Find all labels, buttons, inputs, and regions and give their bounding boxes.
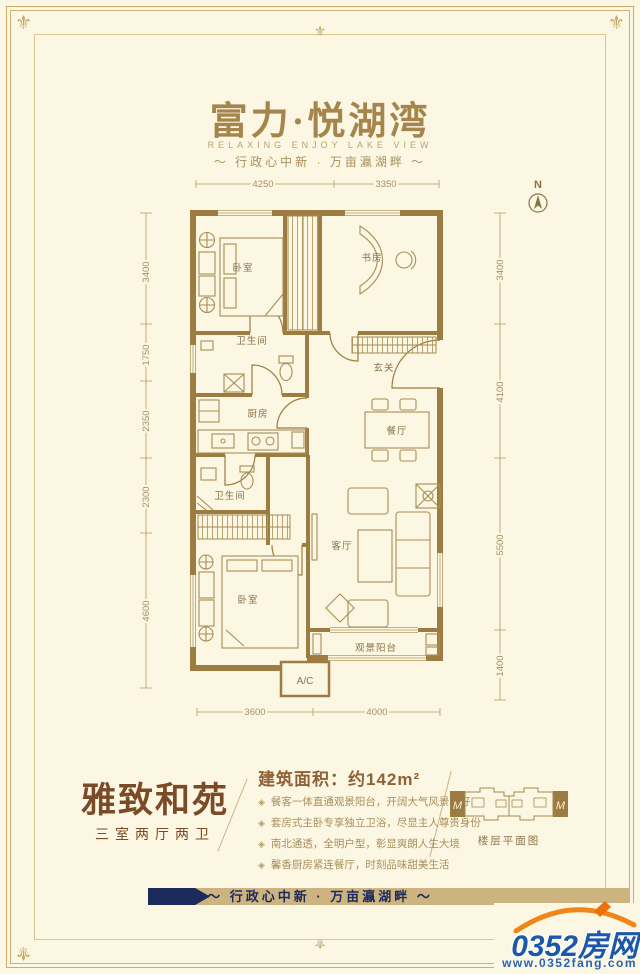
feature-text: 南北通透，全明户型，彰显爽朗人生大境 [271, 838, 460, 850]
dim-top-1: 4250 [252, 179, 273, 190]
bed-icon [199, 233, 283, 317]
site-logo[interactable]: 0352房网 www.0352fang.com [494, 903, 640, 974]
dim-left-4: 2300 [141, 486, 152, 507]
sofa-icon [312, 484, 440, 627]
fleur-ornament-icon: ⚜ [608, 14, 625, 33]
room-label-bedroom2: 卧室 [237, 594, 258, 606]
floor-plate-outline [465, 788, 553, 820]
floor-plate-label: 楼层平面图 [450, 833, 568, 848]
room-label-bedroom1: 卧室 [232, 262, 253, 274]
unit-mark: M [556, 800, 566, 812]
dim-left-3: 2350 [141, 410, 152, 431]
dim-bottom-2: 4000 [366, 707, 387, 718]
fleur-ornament-icon: ⚜ [15, 943, 32, 962]
room-label-kitchen: 厨房 [247, 408, 268, 420]
dim-left-1: 3400 [141, 261, 152, 282]
dim-right-2: 4100 [495, 381, 506, 402]
room-label-living: 客厅 [331, 540, 352, 552]
room-label-foyer: 玄关 [373, 362, 394, 374]
room-label-ac: A/C [297, 676, 314, 687]
diamond-bullet-icon: ◈ [258, 839, 265, 849]
room-label-study: 书房 [361, 252, 382, 264]
feature-text: 馨香厨房紧连餐厅，时刻品味甜美生活 [271, 859, 450, 871]
room-label-balcony: 观景阳台 [355, 642, 397, 654]
room-label-bath2: 卫生间 [214, 490, 246, 502]
dim-top-2: 3350 [375, 179, 396, 190]
floorplan: 4250 3350 3600 4000 3400 1750 2350 2300 … [125, 165, 545, 740]
logo-url[interactable]: www.0352fang.com [495, 956, 637, 970]
diamond-bullet-icon: ◈ [258, 818, 265, 828]
diamond-bullet-icon: ◈ [258, 797, 265, 807]
unit-mark: M [453, 800, 463, 812]
kitchen-counter-icon [198, 400, 306, 453]
area-title: 建筑面积：约142m² [258, 765, 420, 790]
feature-item: ◈馨香厨房紧连餐厅，时刻品味甜美生活 [258, 855, 481, 876]
feature-item: ◈南北通透，全明户型，彰显爽朗人生大境 [258, 834, 481, 855]
room-label-dining: 餐厅 [386, 425, 407, 437]
toilet-icon [201, 341, 293, 392]
diamond-bullet-icon: ◈ [258, 860, 265, 870]
dim-left-2: 1750 [141, 344, 152, 365]
feature-item: ◈套房式主卧专享独立卫浴，尽显主人尊贵身份 [258, 813, 481, 834]
project-subtitle-en: RELAXING ENJOY LAKE VIEW [0, 140, 640, 150]
fleur-ornament-icon: ⚜ [314, 936, 327, 950]
feature-list: ◈餐客一体直通观景阳台，开阔大气风景独好 ◈套房式主卧专享独立卫浴，尽显主人尊贵… [258, 792, 481, 876]
estate-name: 雅致和苑 [68, 772, 242, 823]
dim-right-3: 5500 [495, 534, 506, 555]
dim-bottom-1: 3600 [244, 707, 265, 718]
floor-plate-diagram: M M [450, 780, 568, 830]
dim-right-4: 1400 [495, 655, 506, 676]
dim-left-5: 4600 [141, 600, 152, 621]
feature-item: ◈餐客一体直通观景阳台，开阔大气风景独好 [258, 792, 481, 813]
estate-layout: 三室两厅两卫 [68, 824, 242, 844]
poster-page: ⚜ ⚜ ⚜ ⚜ ⚜ ⚜ 富力·悦湖湾 RELAXING ENJOY LAKE V… [0, 0, 640, 974]
fleur-ornament-icon: ⚜ [314, 25, 327, 39]
fleur-ornament-icon: ⚜ [15, 14, 32, 33]
ac-platform: A/C [281, 662, 329, 696]
feature-text: 餐客一体直通观景阳台，开阔大气风景独好 [271, 796, 471, 808]
room-label-bath1: 卫生间 [236, 335, 268, 347]
project-title: 富力·悦湖湾 [0, 90, 640, 145]
dim-right-1: 3400 [495, 259, 506, 280]
